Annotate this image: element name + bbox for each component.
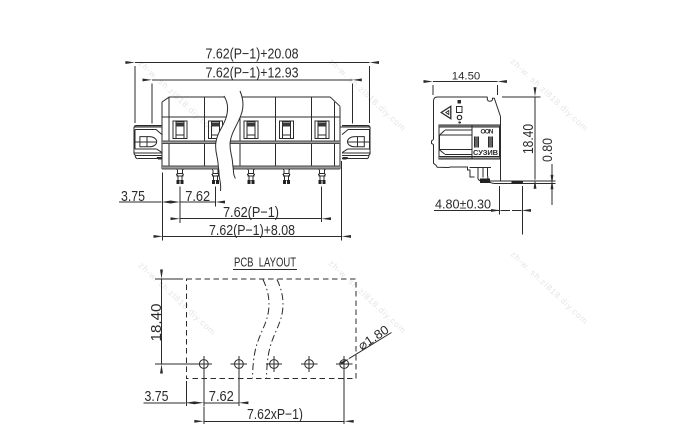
svg-text:14.50: 14.50: [452, 71, 481, 83]
svg-text:3.75: 3.75: [121, 189, 145, 205]
svg-text:7.62(P−1): 7.62(P−1): [223, 205, 279, 221]
svg-text:4.80±0.30: 4.80±0.30: [435, 197, 491, 212]
svg-text:7.62: 7.62: [209, 389, 234, 405]
svg-text:3.75: 3.75: [145, 389, 169, 405]
svg-text:zh-w. sh.zl818.diy.com: zh-w. sh.zl818.diy.com: [327, 258, 409, 335]
svg-text:PCB LAYOUT: PCB LAYOUT: [234, 256, 296, 270]
svg-text:18.40: 18.40: [521, 124, 537, 154]
svg-text:7.62(P−1)+20.08: 7.62(P−1)+20.08: [206, 47, 299, 63]
svg-text:18.40: 18.40: [149, 304, 165, 342]
svg-text:7.62xP−1): 7.62xP−1): [247, 407, 303, 423]
svg-text:7.62(P−1)+12.93: 7.62(P−1)+12.93: [206, 65, 299, 81]
svg-text:СУЗИВ: СУЗИВ: [473, 148, 499, 157]
svg-text:zh-w. sh.zl818.diy.com: zh-w. sh.zl818.diy.com: [509, 56, 591, 133]
svg-text:zh-w. sh.zl818.diy.com: zh-w. sh.zl818.diy.com: [509, 249, 591, 326]
svg-text:OON: OON: [481, 129, 494, 136]
svg-text:⌀1.80: ⌀1.80: [355, 323, 391, 353]
svg-text:7.62(P−1)+8.08: 7.62(P−1)+8.08: [209, 223, 295, 239]
svg-text:zh-w. sh.zl818.diy.com: zh-w. sh.zl818.diy.com: [327, 56, 409, 133]
svg-text:7.62: 7.62: [185, 189, 210, 205]
svg-text:0.80: 0.80: [539, 138, 555, 162]
